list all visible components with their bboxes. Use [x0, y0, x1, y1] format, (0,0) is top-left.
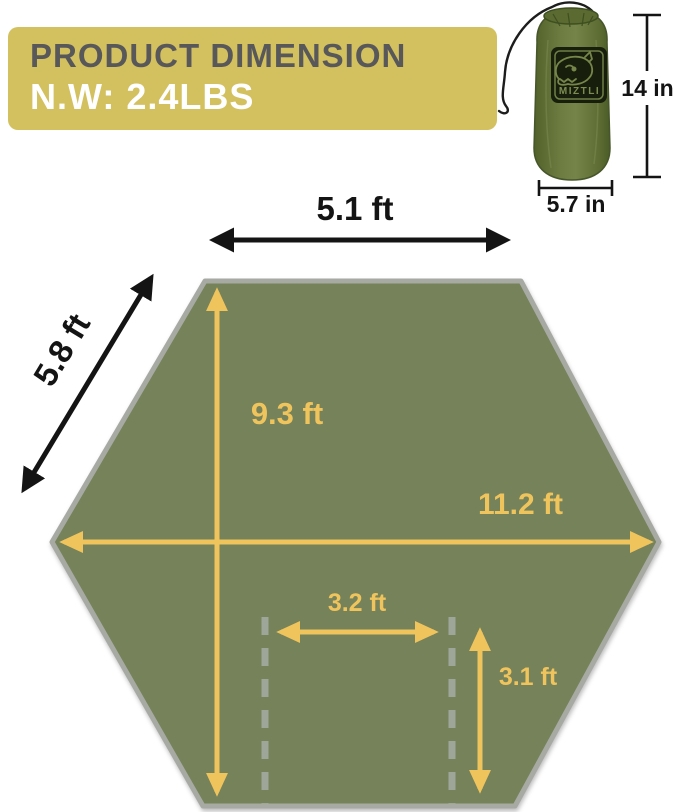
door-height-dim-label: 3.1 ft — [483, 663, 573, 692]
sack-width-dim-label: 5.7 in — [532, 191, 620, 218]
banner-title: PRODUCT DIMENSION — [30, 37, 406, 75]
title-banner: PRODUCT DIMENSION N.W: 2.4LBS — [8, 27, 497, 130]
top-edge-dim-label: 5.1 ft — [270, 190, 440, 228]
max-width-dim-label: 11.2 ft — [438, 488, 603, 522]
product-dimension-infographic: PRODUCT DIMENSION N.W: 2.4LBS 5.1 ft 5.8… — [0, 0, 679, 812]
center-height-dim-label: 9.3 ft — [222, 396, 352, 432]
door-width-dim-label: 3.2 ft — [277, 589, 437, 618]
banner-weight: N.W: 2.4LBS — [30, 76, 254, 118]
sack-height-dim-label: 14 in — [616, 75, 679, 102]
brand-name-label: MIZTLI — [553, 86, 606, 97]
